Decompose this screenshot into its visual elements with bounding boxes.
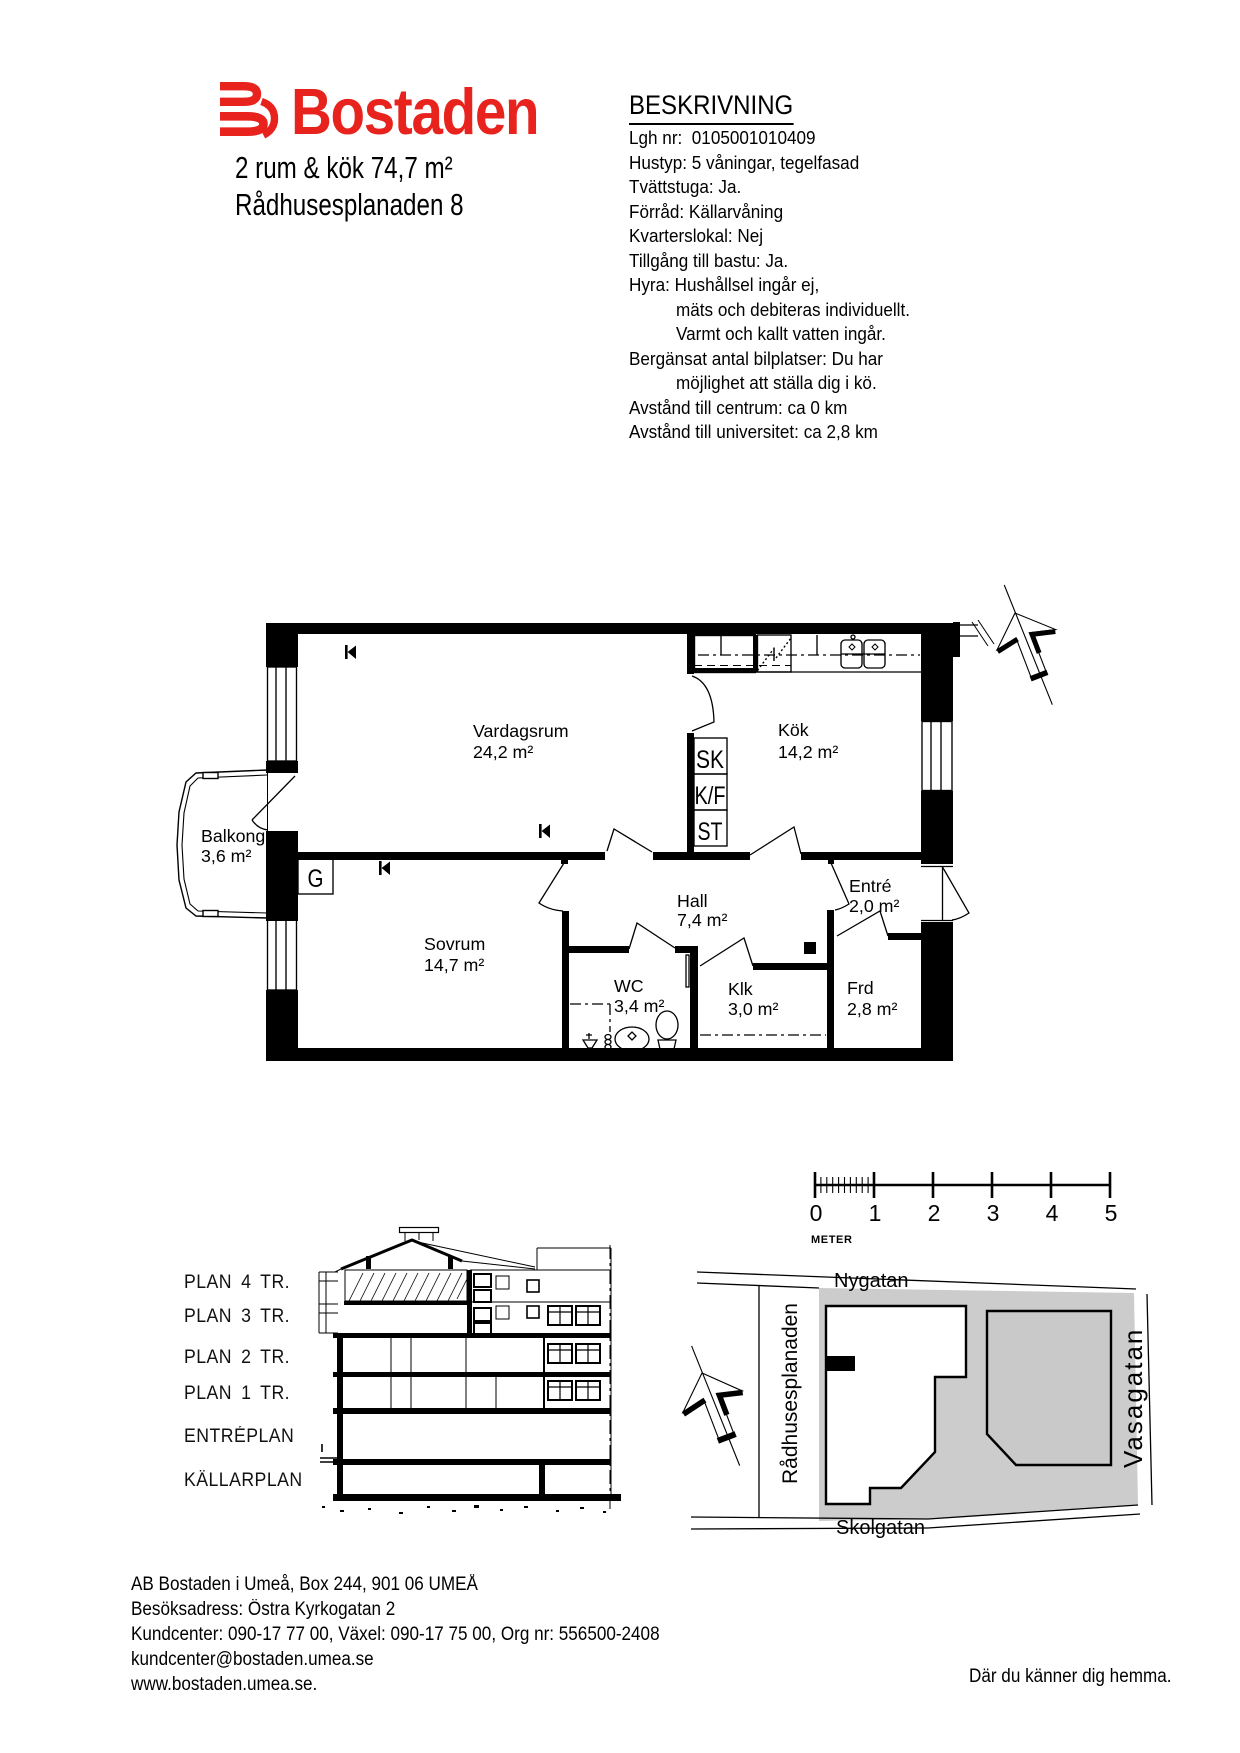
svg-text:5: 5: [1105, 1200, 1118, 1226]
svg-text:Frd: Frd: [847, 978, 874, 998]
svg-text:3,4 m²: 3,4 m²: [614, 996, 664, 1016]
svg-text:14,7 m²: 14,7 m²: [424, 955, 484, 975]
svg-text:3: 3: [987, 1200, 1000, 1226]
svg-text:K/F: K/F: [695, 782, 726, 810]
svg-text:3,0 m²: 3,0 m²: [728, 999, 778, 1019]
svg-text:1: 1: [869, 1200, 882, 1226]
svg-text:3,6 m²: 3,6 m²: [201, 846, 251, 866]
svg-text:Rådhusesplanaden: Rådhusesplanaden: [779, 1303, 802, 1484]
svg-text:WC: WC: [614, 976, 644, 996]
svg-text:SK: SK: [696, 746, 724, 774]
svg-text:Nygatan: Nygatan: [834, 1270, 909, 1292]
svg-text:7,4 m²: 7,4 m²: [677, 910, 727, 930]
svg-text:Hall: Hall: [677, 891, 708, 911]
svg-text:2,0 m²: 2,0 m²: [849, 896, 899, 916]
svg-text:G: G: [308, 865, 324, 893]
svg-text:Kök: Kök: [778, 720, 809, 740]
svg-text:Klk: Klk: [728, 979, 753, 999]
svg-text:Entré: Entré: [849, 876, 892, 896]
svg-text:Balkong: Balkong: [201, 826, 265, 846]
svg-text:Skolgatan: Skolgatan: [836, 1517, 925, 1539]
svg-text:14,2 m²: 14,2 m²: [778, 742, 838, 762]
svg-text:Vasagatan: Vasagatan: [1118, 1328, 1148, 1468]
svg-text:4: 4: [1046, 1200, 1059, 1226]
svg-text:METER: METER: [811, 1234, 853, 1246]
svg-text:ST: ST: [698, 818, 723, 846]
svg-text:2: 2: [928, 1200, 941, 1226]
svg-text:Sovrum: Sovrum: [424, 934, 485, 954]
svg-text:24,2 m²: 24,2 m²: [473, 742, 533, 762]
svg-text:0: 0: [810, 1200, 823, 1226]
svg-text:Vardagsrum: Vardagsrum: [473, 721, 569, 741]
svg-text:2,8 m²: 2,8 m²: [847, 999, 897, 1019]
